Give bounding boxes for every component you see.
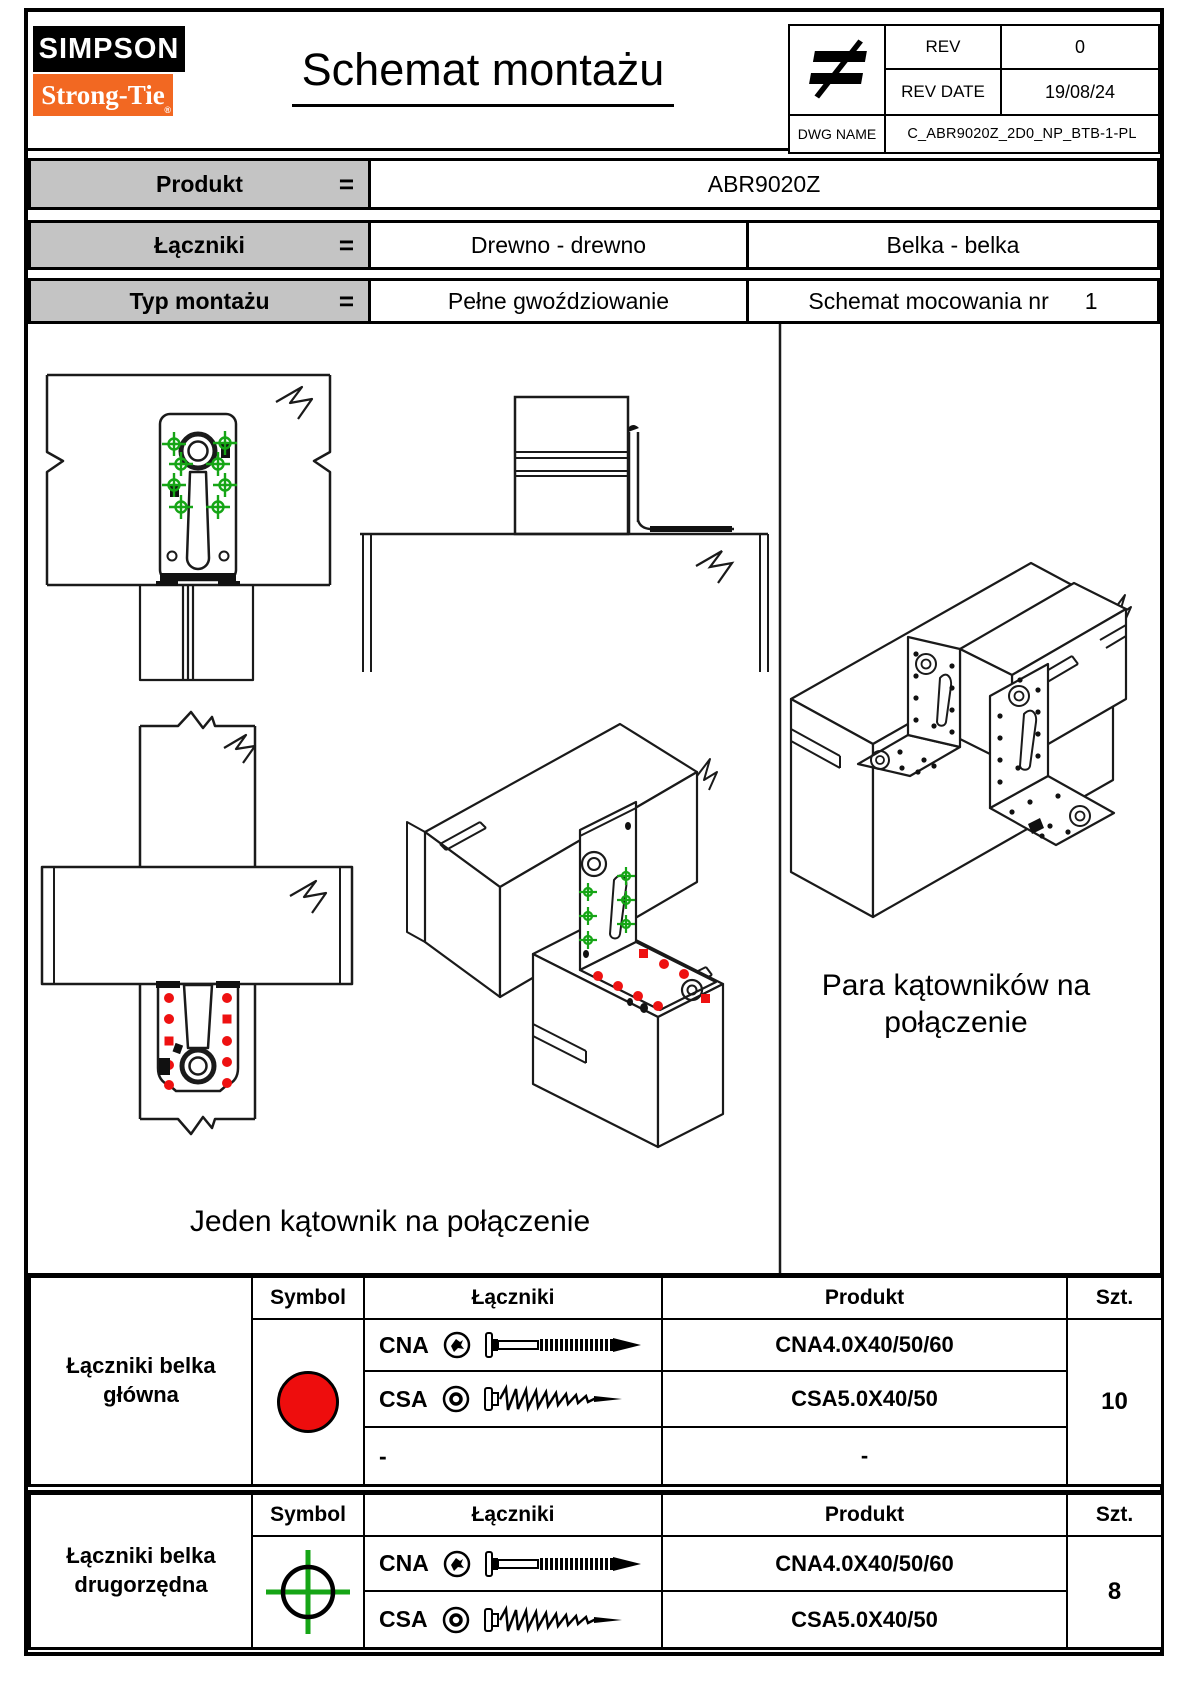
fasteners-label: Łączniki [154, 232, 245, 259]
fasteners-value-1: Drewno - drewno [371, 223, 749, 267]
csa-code: CSA [379, 1606, 428, 1633]
simpson-strongtie-logo: SIMPSON Strong-Tie ® [33, 26, 193, 116]
dwg-name-label: DWG NAME [788, 114, 886, 154]
table1-dash-product: - [661, 1426, 1068, 1486]
main-beam-symbol-cell [251, 1318, 365, 1486]
table2-csa-product: CSA5.0X40/50 [661, 1590, 1068, 1649]
nail-head-icon [442, 1330, 472, 1360]
table1-row-label: Łączniki belka główna [29, 1276, 253, 1486]
logo-simpson: SIMPSON [33, 26, 185, 72]
table2-header-laczniki: Łączniki [363, 1493, 663, 1537]
scheme-number-label: Schemat mocowania nr [808, 288, 1048, 315]
registered-mark: ® [164, 105, 171, 115]
table2-qty-value: 8 [1066, 1535, 1163, 1649]
equals-sign: = [339, 169, 354, 200]
table1-header-qty: Szt. [1066, 1276, 1163, 1320]
secondary-beam-symbol-cell [251, 1535, 365, 1649]
table2-header-symbol: Symbol [251, 1493, 365, 1537]
rev-date-value: 19/08/24 [1000, 68, 1160, 116]
table1-csa-product: CSA5.0X40/50 [661, 1370, 1068, 1428]
mount-type-label: Typ montażu [129, 288, 269, 315]
cna-code: CNA [379, 1332, 429, 1359]
revision-block: REV 0 REV DATE 19/08/24 DWG NAME C_ABR90… [790, 24, 1160, 152]
nail-head-icon [442, 1549, 472, 1579]
table1-qty-value: 10 [1066, 1318, 1163, 1486]
projection-symbol-cell [788, 24, 886, 116]
page-title-wrap: Schemat montażu [213, 44, 753, 107]
cna-nail-icon [485, 1549, 645, 1579]
first-angle-projection-icon [797, 39, 877, 101]
table1-csa-cell: CSA [363, 1370, 663, 1428]
csa-screw-icon [484, 1384, 634, 1414]
table1-header-produkt: Produkt [661, 1276, 1068, 1320]
isometric-bracket-pair-drawing [791, 563, 1131, 917]
table2-header-qty: Szt. [1066, 1493, 1163, 1537]
table2-header-produkt: Produkt [661, 1493, 1068, 1537]
equals-sign: = [339, 230, 354, 261]
table1-header-laczniki: Łączniki [363, 1276, 663, 1320]
table1-dash-cell: - [363, 1426, 663, 1486]
dash-code: - [379, 1443, 387, 1470]
equals-sign: = [339, 286, 354, 317]
table2-csa-cell: CSA [363, 1590, 663, 1649]
cna-nail-icon [485, 1330, 645, 1360]
csa-code: CSA [379, 1386, 428, 1413]
dwg-name-value: C_ABR9020Z_2D0_NP_BTB-1-PL [884, 114, 1160, 154]
fasteners-value-2: Belka - belka [749, 223, 1157, 267]
fasteners-label-cell: Łączniki = [31, 223, 371, 267]
page-title: Schemat montażu [292, 44, 675, 107]
table2-cna-product: CNA4.0X40/50/60 [661, 1535, 1068, 1592]
fastener-table-secondary-beam: Łączniki belka drugorzędna Symbol Łączni… [28, 1490, 1160, 1650]
product-label-cell: Produkt = [31, 161, 371, 207]
sheet-frame: SIMPSON Strong-Tie ® Schemat montażu REV [24, 8, 1164, 1656]
cna-code: CNA [379, 1550, 429, 1577]
fasteners-row: Łączniki = Drewno - drewno Belka - belka [28, 220, 1160, 270]
table2-row-label: Łączniki belka drugorzędna [29, 1493, 253, 1649]
table1-header-symbol: Symbol [251, 1276, 365, 1320]
product-label: Produkt [156, 171, 243, 198]
isometric-single-bracket-drawing [407, 724, 723, 1147]
table2-cna-cell: CNA [363, 1535, 663, 1592]
mount-type-value-1: Pełne gwoździowanie [371, 281, 749, 321]
table1-row-label-text: Łączniki belka główna [66, 1352, 216, 1409]
green-crosshair-symbol [263, 1547, 353, 1637]
rev-value: 0 [1000, 24, 1160, 70]
product-row: Produkt = ABR9020Z [28, 158, 1160, 210]
scheme-number-value: 1 [1085, 288, 1098, 315]
mount-type-value-2: Schemat mocowania nr 1 [749, 281, 1157, 321]
product-value: ABR9020Z [371, 161, 1157, 207]
logo-strongtie-text: Strong-Tie [41, 80, 165, 111]
fastener-table-main-beam: Łączniki belka główna Symbol Łączniki Pr… [28, 1273, 1160, 1487]
table1-cna-cell: CNA [363, 1318, 663, 1372]
table2-row-label-text: Łączniki belka drugorzędna [66, 1542, 216, 1599]
csa-screw-icon [484, 1605, 634, 1635]
front-view-drawing [47, 375, 330, 680]
left-panel-caption: Jeden kątownik na połączenie [28, 1204, 752, 1241]
red-circle-symbol [277, 1371, 339, 1433]
rev-date-label: REV DATE [884, 68, 1002, 116]
rev-label: REV [884, 24, 1002, 70]
logo-strongtie: Strong-Tie ® [33, 74, 173, 116]
right-panel-caption: Para kątowników na połączenie [752, 968, 1160, 1041]
technical-drawing-canvas [28, 324, 1160, 1273]
cross-view-drawing [42, 712, 352, 1134]
table1-cna-product: CNA4.0X40/50/60 [661, 1318, 1068, 1372]
mount-type-row: Typ montażu = Pełne gwoździowanie Schema… [28, 278, 1160, 324]
sheet-header: SIMPSON Strong-Tie ® Schemat montażu REV [28, 12, 1160, 151]
side-view-drawing [360, 397, 768, 672]
mount-type-label-cell: Typ montażu = [31, 281, 371, 321]
screw-head-icon [441, 1605, 471, 1635]
assembly-diagram-page: SIMPSON Strong-Tie ® Schemat montażu REV [0, 0, 1190, 1682]
screw-head-icon [441, 1384, 471, 1414]
